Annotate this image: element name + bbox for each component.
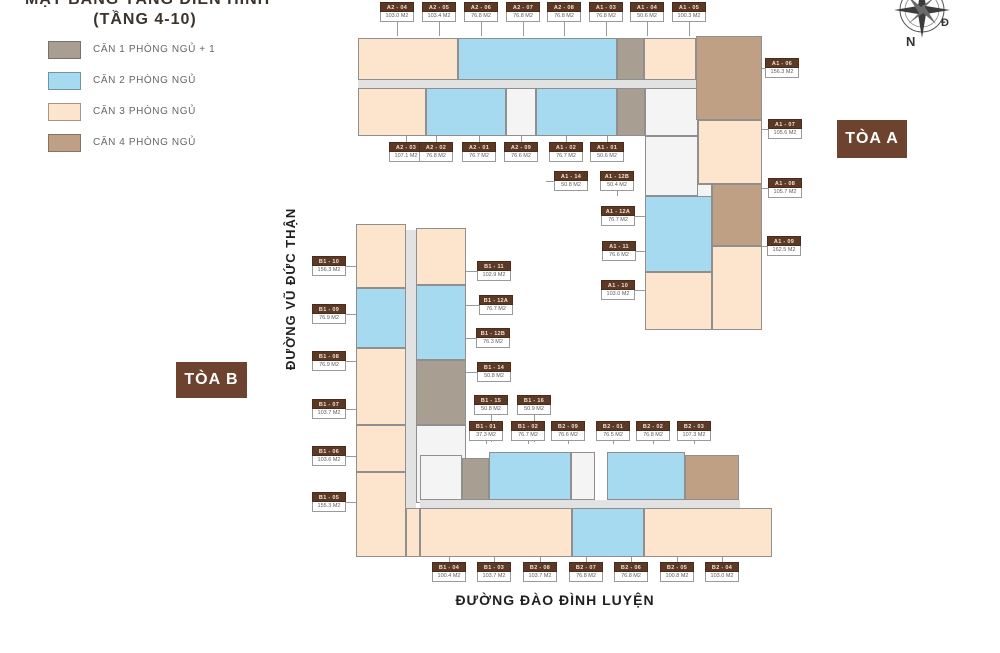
unit-code: B2 - 07 [569, 562, 603, 572]
tower-a-badge: TÒA A [837, 120, 907, 158]
unit-code: B1 - 09 [312, 304, 346, 314]
unit-label-b2-03: B2 - 03107.3 M2 [677, 421, 711, 441]
unit-area: 76.8 M2 [506, 12, 540, 22]
unit-area: 76.8 M2 [419, 152, 453, 162]
unit-area: 76.7 M2 [549, 152, 583, 162]
unit-block [645, 88, 698, 136]
unit-block [685, 455, 739, 500]
unit-label-b1-12a: B1 - 12A76.7 M2 [479, 295, 513, 315]
unit-label-b2-08: B2 - 08103.7 M2 [523, 562, 557, 582]
unit-code: A1 - 03 [589, 2, 623, 12]
unit-block [426, 88, 506, 136]
legend-item-3: CĂN 4 PHÒNG NGỦ [48, 133, 215, 152]
unit-code: B2 - 08 [523, 562, 557, 572]
unit-block [617, 38, 644, 80]
unit-area: 76.6 M2 [551, 431, 585, 441]
unit-area: 107.3 M2 [677, 431, 711, 441]
label-connector-line [466, 305, 479, 306]
unit-label-a1-06: A1 - 06156.3 M2 [765, 58, 799, 78]
unit-label-b1-14: B1 - 1450.8 M2 [477, 362, 511, 382]
unit-label-b1-01: B1 - 0137.3 M2 [469, 421, 503, 441]
unit-code: B2 - 01 [596, 421, 630, 431]
page-title-line1: MẶT BẰNG TẦNG ĐIỂN HÌNH [25, 0, 265, 9]
unit-block [645, 136, 698, 196]
unit-area: 76.8 M2 [589, 12, 623, 22]
unit-area: 76.7 M2 [601, 216, 635, 226]
unit-block [644, 508, 772, 557]
unit-block [416, 360, 466, 425]
unit-area: 105.7 M2 [768, 188, 802, 198]
label-connector-line [466, 271, 477, 272]
label-connector-line [346, 361, 356, 362]
unit-block [607, 452, 685, 500]
unit-block [406, 508, 420, 557]
unit-label-b1-16: B1 - 1650.9 M2 [517, 395, 551, 415]
unit-code: A1 - 06 [765, 58, 799, 68]
page-title-line2: (TẦNG 4-10) [25, 11, 265, 29]
unit-area: 76.8 M2 [614, 572, 648, 582]
unit-area: 37.3 M2 [469, 431, 503, 441]
unit-code: A2 - 01 [462, 142, 496, 152]
unit-code: B1 - 11 [477, 261, 511, 271]
unit-label-a1-03: A1 - 0376.8 M2 [589, 2, 623, 22]
unit-label-a1-08: A1 - 08105.7 M2 [768, 178, 802, 198]
unit-code: B1 - 06 [312, 446, 346, 456]
unit-area: 76.3 M2 [476, 338, 510, 348]
unit-code: B1 - 02 [511, 421, 545, 431]
unit-label-a1-04: A1 - 0450.6 M2 [630, 2, 664, 22]
label-connector-line [523, 22, 524, 36]
unit-label-a1-07: A1 - 07105.6 M2 [768, 119, 802, 139]
unit-code: B1 - 12A [479, 295, 513, 305]
unit-block [358, 38, 458, 80]
unit-label-b2-01: B2 - 0176.5 M2 [596, 421, 630, 441]
unit-code: A1 - 12A [601, 206, 635, 216]
unit-area: 156.3 M2 [312, 266, 346, 276]
unit-block [712, 184, 762, 246]
unit-code: A2 - 05 [422, 2, 456, 12]
unit-label-b1-08: B1 - 0876.9 M2 [312, 351, 346, 371]
unit-code: A2 - 06 [464, 2, 498, 12]
unit-block [645, 196, 712, 272]
unit-area: 162.5 M2 [767, 246, 801, 256]
unit-code: B1 - 16 [517, 395, 551, 405]
unit-label-a2-03: A2 - 03107.1 M2 [389, 142, 423, 162]
legend-label: CĂN 1 PHÒNG NGỦ + 1 [93, 44, 215, 55]
unit-area: 155.3 M2 [312, 502, 346, 512]
label-connector-line [689, 22, 690, 36]
unit-block [420, 508, 572, 557]
unit-area: 103.0 M2 [601, 290, 635, 300]
unit-label-a1-12a: A1 - 12A76.7 M2 [601, 206, 635, 226]
label-connector-line [617, 191, 618, 196]
unit-code: B2 - 03 [677, 421, 711, 431]
unit-label-a2-01: A2 - 0176.7 M2 [462, 142, 496, 162]
unit-code: A2 - 07 [506, 2, 540, 12]
unit-code: B1 - 08 [312, 351, 346, 361]
label-connector-line [635, 216, 645, 217]
unit-area: 100.8 M2 [660, 572, 694, 582]
unit-code: A2 - 09 [504, 142, 538, 152]
unit-area: 100.3 M2 [672, 12, 706, 22]
label-connector-line [528, 441, 529, 444]
unit-area: 102.9 M2 [477, 271, 511, 281]
legend-item-0: CĂN 1 PHÒNG NGỦ + 1 [48, 40, 215, 59]
unit-label-b2-04: B2 - 04103.0 M2 [705, 562, 739, 582]
unit-label-b1-04: B1 - 04100.4 M2 [432, 562, 466, 582]
unit-label-a1-09: A1 - 09162.5 M2 [767, 236, 801, 256]
label-connector-line [568, 441, 569, 444]
unit-code: A1 - 04 [630, 2, 664, 12]
unit-code: A1 - 05 [672, 2, 706, 12]
legend-label: CĂN 2 PHÒNG NGỦ [93, 75, 196, 86]
unit-block [645, 272, 712, 330]
unit-code: A1 - 12B [600, 171, 634, 181]
unit-area: 76.5 M2 [596, 431, 630, 441]
unit-area: 103.7 M2 [312, 409, 346, 419]
unit-label-b1-11: B1 - 11102.9 M2 [477, 261, 511, 281]
unit-block [420, 455, 462, 500]
unit-area: 50.9 M2 [517, 405, 551, 415]
unit-area: 76.8 M2 [464, 12, 498, 22]
page-title: MẶT BẰNG TẦNG ĐIỂN HÌNH (TẦNG 4-10) [25, 0, 265, 29]
floorplan-page: MẶT BẰNG TẦNG ĐIỂN HÌNH (TẦNG 4-10) CĂN … [0, 0, 1000, 653]
unit-area: 50.8 M2 [554, 181, 588, 191]
unit-code: A1 - 07 [768, 119, 802, 129]
label-connector-line [346, 409, 356, 410]
unit-block [571, 452, 595, 500]
label-connector-line [546, 181, 554, 182]
unit-block [356, 425, 406, 472]
compass-rose-icon: N Đ [884, 0, 960, 52]
label-connector-line [486, 441, 487, 444]
unit-code: B2 - 02 [636, 421, 670, 431]
unit-label-a2-05: A2 - 05103.4 M2 [422, 2, 456, 22]
unit-label-a2-02: A2 - 0276.8 M2 [419, 142, 453, 162]
unit-block [358, 80, 698, 88]
street-label-vu-duc-than: ĐƯỜNG VŨ ĐỨC THẬN [283, 210, 303, 370]
unit-code: A1 - 01 [590, 142, 624, 152]
unit-area: 76.9 M2 [312, 314, 346, 324]
unit-block [696, 36, 762, 120]
unit-block [358, 88, 426, 136]
legend-swatch [48, 41, 81, 59]
unit-label-a1-11: A1 - 1176.6 M2 [602, 241, 636, 261]
label-connector-line [466, 338, 476, 339]
unit-area: 156.3 M2 [765, 68, 799, 78]
unit-label-a2-08: A2 - 0876.8 M2 [547, 2, 581, 22]
unit-area: 76.7 M2 [479, 305, 513, 315]
unit-label-a2-06: A2 - 0676.8 M2 [464, 2, 498, 22]
unit-label-a1-12b: A1 - 12B50.4 M2 [600, 171, 634, 191]
unit-label-b1-02: B1 - 0276.7 M2 [511, 421, 545, 441]
label-connector-line [636, 251, 645, 252]
unit-label-b2-05: B2 - 05100.8 M2 [660, 562, 694, 582]
unit-area: 76.8 M2 [569, 572, 603, 582]
label-connector-line [481, 22, 482, 36]
unit-label-a2-09: A2 - 0976.6 M2 [504, 142, 538, 162]
legend-swatch [48, 72, 81, 90]
unit-block [356, 348, 406, 425]
unit-block [462, 458, 489, 500]
label-connector-line [647, 22, 648, 36]
unit-area: 76.6 M2 [602, 251, 636, 261]
unit-area: 103.0 M2 [380, 12, 414, 22]
unit-code: A1 - 14 [554, 171, 588, 181]
unit-block [420, 500, 740, 508]
unit-code: B1 - 14 [477, 362, 511, 372]
unit-area: 103.0 M2 [705, 572, 739, 582]
unit-code: B2 - 05 [660, 562, 694, 572]
unit-label-b1-05: B1 - 05155.3 M2 [312, 492, 346, 512]
unit-area: 103.4 M2 [422, 12, 456, 22]
unit-block [712, 246, 762, 330]
unit-area: 50.6 M2 [590, 152, 624, 162]
tower-b-badge: TÒA B [176, 362, 247, 398]
unit-label-b1-07: B1 - 07103.7 M2 [312, 399, 346, 419]
unit-code: B1 - 04 [432, 562, 466, 572]
unit-area: 107.1 M2 [389, 152, 423, 162]
label-connector-line [613, 441, 614, 444]
unit-label-b2-07: B2 - 0776.8 M2 [569, 562, 603, 582]
unit-label-a2-07: A2 - 0776.8 M2 [506, 2, 540, 22]
unit-block [458, 38, 617, 80]
street-label-dao-dinh-luyen: ĐƯỜNG ĐÀO ĐÌNH LUYỆN [430, 592, 680, 608]
unit-label-a1-10: A1 - 10103.0 M2 [601, 280, 635, 300]
unit-label-b2-02: B2 - 0276.8 M2 [636, 421, 670, 441]
unit-block [416, 285, 466, 360]
unit-block [644, 38, 696, 80]
legend-label: CĂN 3 PHÒNG NGỦ [93, 106, 196, 117]
unit-block [489, 452, 571, 500]
legend: CĂN 1 PHÒNG NGỦ + 1CĂN 2 PHÒNG NGỦCĂN 3 … [48, 40, 215, 164]
unit-code: B1 - 12B [476, 328, 510, 338]
label-connector-line [694, 441, 695, 444]
unit-label-a2-04: A2 - 04103.0 M2 [380, 2, 414, 22]
unit-label-a1-05: A1 - 05100.3 M2 [672, 2, 706, 22]
legend-swatch [48, 103, 81, 121]
compass-south-label: N [906, 34, 915, 49]
unit-code: A2 - 04 [380, 2, 414, 12]
unit-block [617, 88, 645, 136]
unit-area: 103.7 M2 [523, 572, 557, 582]
label-connector-line [635, 290, 645, 291]
unit-code: B2 - 09 [551, 421, 585, 431]
unit-code: B2 - 06 [614, 562, 648, 572]
unit-code: B1 - 07 [312, 399, 346, 409]
unit-label-b1-09: B1 - 0976.9 M2 [312, 304, 346, 324]
unit-code: B1 - 01 [469, 421, 503, 431]
unit-label-b1-10: B1 - 10156.3 M2 [312, 256, 346, 276]
unit-code: B2 - 04 [705, 562, 739, 572]
unit-area: 103.6 M2 [312, 456, 346, 466]
unit-area: 76.7 M2 [462, 152, 496, 162]
legend-label: CĂN 4 PHÒNG NGỦ [93, 137, 196, 148]
unit-area: 103.7 M2 [477, 572, 511, 582]
unit-code: A1 - 02 [549, 142, 583, 152]
unit-label-b1-15: B1 - 1550.8 M2 [474, 395, 508, 415]
unit-code: A2 - 03 [389, 142, 423, 152]
unit-block [506, 88, 536, 136]
legend-item-2: CĂN 3 PHÒNG NGỦ [48, 102, 215, 121]
label-connector-line [397, 22, 398, 36]
label-connector-line [606, 22, 607, 36]
unit-code: A2 - 02 [419, 142, 453, 152]
unit-label-b2-09: B2 - 0976.6 M2 [551, 421, 585, 441]
label-connector-line [346, 266, 356, 267]
unit-block [536, 88, 617, 136]
unit-block [406, 230, 416, 508]
unit-area: 76.7 M2 [511, 431, 545, 441]
unit-code: B1 - 05 [312, 492, 346, 502]
unit-area: 76.6 M2 [504, 152, 538, 162]
label-connector-line [653, 441, 654, 444]
unit-block [416, 228, 466, 285]
unit-label-a1-02: A1 - 0276.7 M2 [549, 142, 583, 162]
unit-code: A1 - 09 [767, 236, 801, 246]
legend-item-1: CĂN 2 PHÒNG NGỦ [48, 71, 215, 90]
label-connector-line [346, 456, 356, 457]
label-connector-line [346, 314, 356, 315]
unit-label-a1-01: A1 - 0150.6 M2 [590, 142, 624, 162]
unit-block [356, 288, 406, 348]
unit-code: B1 - 10 [312, 256, 346, 266]
unit-code: A1 - 11 [602, 241, 636, 251]
unit-code: A2 - 08 [547, 2, 581, 12]
unit-label-b1-12b: B1 - 12B76.3 M2 [476, 328, 510, 348]
label-connector-line [439, 22, 440, 36]
unit-area: 100.4 M2 [432, 572, 466, 582]
unit-block [356, 224, 406, 288]
unit-label-b1-03: B1 - 03103.7 M2 [477, 562, 511, 582]
unit-block [356, 472, 406, 557]
legend-swatch [48, 134, 81, 152]
label-connector-line [564, 22, 565, 36]
label-connector-line [466, 372, 477, 373]
unit-area: 76.9 M2 [312, 361, 346, 371]
unit-block [698, 120, 762, 184]
unit-area: 50.8 M2 [477, 372, 511, 382]
unit-area: 76.8 M2 [636, 431, 670, 441]
unit-block [572, 508, 644, 557]
unit-label-b2-06: B2 - 0676.8 M2 [614, 562, 648, 582]
unit-code: A1 - 08 [768, 178, 802, 188]
unit-code: B1 - 03 [477, 562, 511, 572]
unit-label-b1-06: B1 - 06103.6 M2 [312, 446, 346, 466]
unit-area: 105.6 M2 [768, 129, 802, 139]
unit-area: 50.4 M2 [600, 181, 634, 191]
unit-area: 50.8 M2 [474, 405, 508, 415]
unit-area: 76.8 M2 [547, 12, 581, 22]
label-connector-line [346, 502, 356, 503]
unit-area: 50.6 M2 [630, 12, 664, 22]
unit-code: A1 - 10 [601, 280, 635, 290]
compass-east-label: Đ [941, 17, 949, 29]
unit-label-a1-14: A1 - 1450.8 M2 [554, 171, 588, 191]
unit-code: B1 - 15 [474, 395, 508, 405]
